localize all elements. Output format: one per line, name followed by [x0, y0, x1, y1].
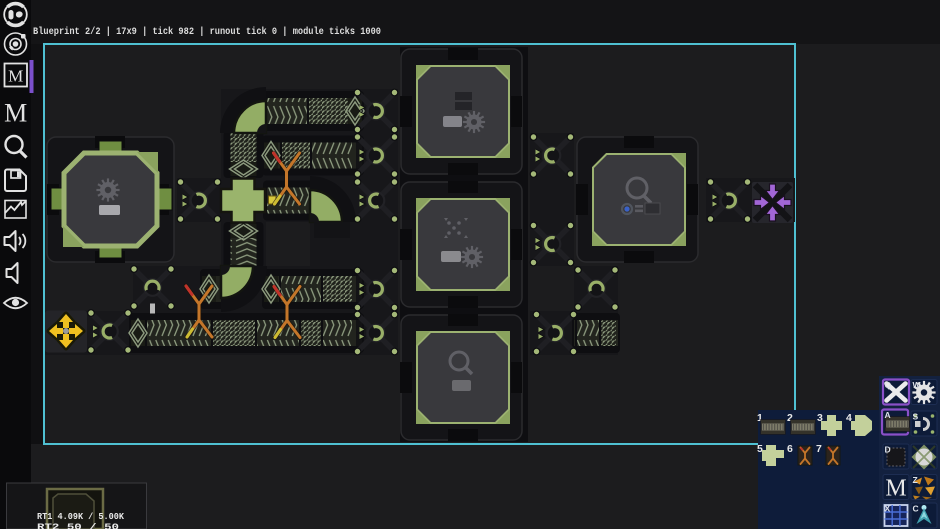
svg-text:M: M — [885, 476, 906, 502]
svg-text:D: D — [885, 445, 891, 455]
svg-text:M: M — [4, 99, 27, 128]
svg-text:Q: Q — [885, 380, 892, 390]
svg-text:Blueprint 2/2 | 17x9 | tick 98: Blueprint 2/2 | 17x9 | tick 982 | runout… — [33, 26, 381, 38]
svg-text:M: M — [8, 67, 23, 86]
svg-text:A: A — [885, 410, 891, 420]
svg-text:X: X — [885, 504, 891, 514]
svg-text:RT2 50 / 50: RT2 50 / 50 — [37, 523, 119, 529]
svg-text:Z: Z — [913, 475, 918, 485]
svg-text:RT1 4.09K / 5.00K: RT1 4.09K / 5.00K — [37, 512, 125, 522]
svg-text:6: 6 — [787, 443, 793, 455]
svg-text:S: S — [913, 412, 919, 422]
svg-text:7: 7 — [816, 443, 822, 455]
svg-text:C: C — [913, 504, 919, 514]
svg-text:W: W — [913, 380, 922, 390]
